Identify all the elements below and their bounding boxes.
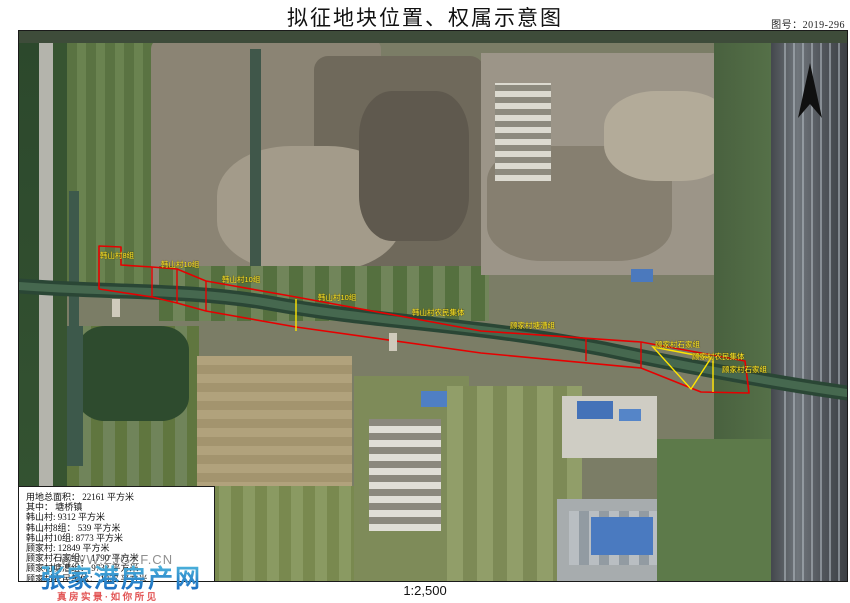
satellite-map-image: 韩山村8组韩山村10组韩山村10组韩山村10组韩山村农民集体顾家村塘漕组顾家村石… bbox=[18, 30, 848, 582]
page-title: 拟征地块位置、权属示意图 bbox=[0, 2, 850, 32]
parcel-label: 顾家村石家组 bbox=[722, 366, 767, 374]
parcel-label: 韩山村10组 bbox=[222, 276, 260, 284]
parcel-label: 韩山村农民集体 bbox=[412, 309, 465, 317]
parcel-label: 顾家村石家组 bbox=[655, 341, 700, 349]
info-line: 韩山村8组： 539 平方米 bbox=[26, 523, 214, 533]
info-line: 用地总面积： 22161 平方米 bbox=[26, 492, 214, 502]
parcel-label: 韩山村8组 bbox=[100, 252, 134, 260]
drawing-sheet: 拟征地块位置、权属示意图 图号：2019-296 bbox=[0, 0, 850, 601]
parcel-label: 韩山村10组 bbox=[318, 294, 356, 302]
info-line: 韩山村: 9312 平方米 bbox=[26, 512, 214, 522]
parcel-label: 顾家村塘漕组 bbox=[510, 322, 555, 330]
parcel-label: 顾家村农民集体 bbox=[692, 353, 745, 361]
info-line: 其中： 塘桥镇 bbox=[26, 502, 214, 512]
parcel-label: 韩山村10组 bbox=[161, 261, 199, 269]
north-arrow-icon bbox=[796, 63, 824, 128]
figure-number: 图号：2019-296 bbox=[771, 16, 845, 31]
info-line: 韩山村10组: 8773 平方米 bbox=[26, 533, 214, 543]
